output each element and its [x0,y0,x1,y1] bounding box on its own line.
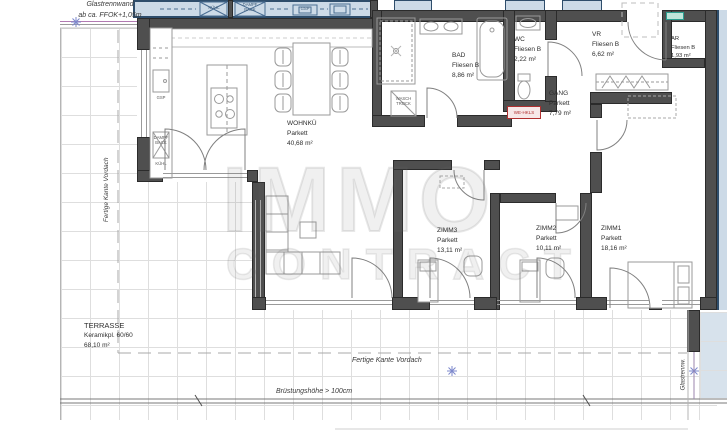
room-area: 10,11 m² [536,244,561,254]
room-name: ZIMM1 [601,224,627,234]
entrance-tag [666,12,684,20]
back-label: BACK [236,8,264,13]
wardrobe-hangers [596,74,668,90]
parapet-label: Brüstungshöhe > 100cm [276,387,352,398]
room-area: 7,79 m² [549,109,571,119]
room-name: VR [592,30,619,40]
room-floor: Keramikpl. 60/60 [84,331,133,341]
room-area: 1,93 m² [671,52,695,61]
room-area: 68,10 m² [84,341,133,351]
back-label: BACK [150,141,172,146]
room-floor: Fliesen B [592,40,619,50]
room-name: ZIMM3 [437,226,462,236]
glass-note: Glastrennwand ab ca. FFOK+1,05m [55,0,165,21]
kuehl-label-column: KÜHL [150,162,172,167]
room-label-bad: BAD Fliesen B 8,86 m² [452,51,479,80]
room-area: 18,16 m² [601,244,627,254]
canopy-left-label: Fertige Kante Vordach [102,140,112,240]
room-label-zimm1: ZIMM1 Parkett 18,16 m² [601,224,627,253]
room-label-ar: AR Fliesen B 1,93 m² [671,35,695,61]
canopy-bottom-label: Fertige Kante Vordach [352,356,422,367]
room-floor: Fliesen B [671,44,695,53]
room-label-zimm3: ZIMM3 Parkett 13,11 m² [437,226,462,255]
room-label-zimm2: ZIMM2 Parkett 10,11 m² [536,224,561,253]
room-label-wohnku: WOHNKÜ Parkett 40,68 m² [287,119,317,148]
room-label-gang: GANG Parkett 7,79 m² [549,89,571,118]
glass-note-line2: ab ca. FFOK+1,05m [55,11,165,22]
trock-label: TROCK [391,102,416,107]
room-area: 2,22 m² [514,55,541,65]
floor-plan: WE-HKLS IMMO CONTRACT Glastrennwand ab c… [0,0,727,433]
room-floor: Parkett [601,234,627,244]
room-floor: Parkett [437,236,462,246]
gsp-label-band: GSP [295,7,315,12]
dampf-back-label-band: DAMPF BACK [236,3,264,13]
room-area: 8,86 m² [452,71,479,81]
room-floor: Parkett [287,129,317,139]
room-label-wc: WC Fliesen B 2,22 m² [514,35,541,64]
room-area: 6,62 m² [592,50,619,60]
kuehl-label-band: KÜHL [201,6,227,11]
hkls-box: WE-HKLS [507,106,541,119]
dampf-back-label-column: DAMPF BACK [150,136,172,146]
wasch-trock-label: WASCH TROCK [391,97,416,107]
couch [266,196,340,274]
room-floor: Fliesen B [514,45,541,55]
gsp-label-column: GSP [150,96,172,101]
room-area: 13,11 m² [437,246,462,256]
glass-divider-label: Glastrennw. [680,330,689,420]
room-name: TERRASSE [84,320,133,331]
room-floor: Parkett [549,99,571,109]
kitchen-island [207,65,247,135]
room-area: 40,68 m² [287,139,317,149]
room-floor: Fliesen B [452,61,479,71]
hkls-label: WE-HKLS [514,110,535,115]
room-name: GANG [549,89,571,99]
kitchen-band-fixtures [160,2,368,16]
room-floor: Parkett [536,234,561,244]
room-name: BAD [452,51,479,61]
bedroom-furniture [418,96,692,308]
room-name: AR [671,35,695,44]
room-label-terrasse: TERRASSE Keramikpl. 60/60 68,10 m² [84,320,133,351]
entrance-canopy-dashed [622,3,658,37]
room-label-vr: VR Fliesen B 6,62 m² [592,30,619,59]
dining-set [275,43,348,115]
room-name: WC [514,35,541,45]
parapet-lines [60,310,727,429]
room-name: WOHNKÜ [287,119,317,129]
glass-note-line1: Glastrennwand [55,0,165,11]
room-name: ZIMM2 [536,224,561,234]
